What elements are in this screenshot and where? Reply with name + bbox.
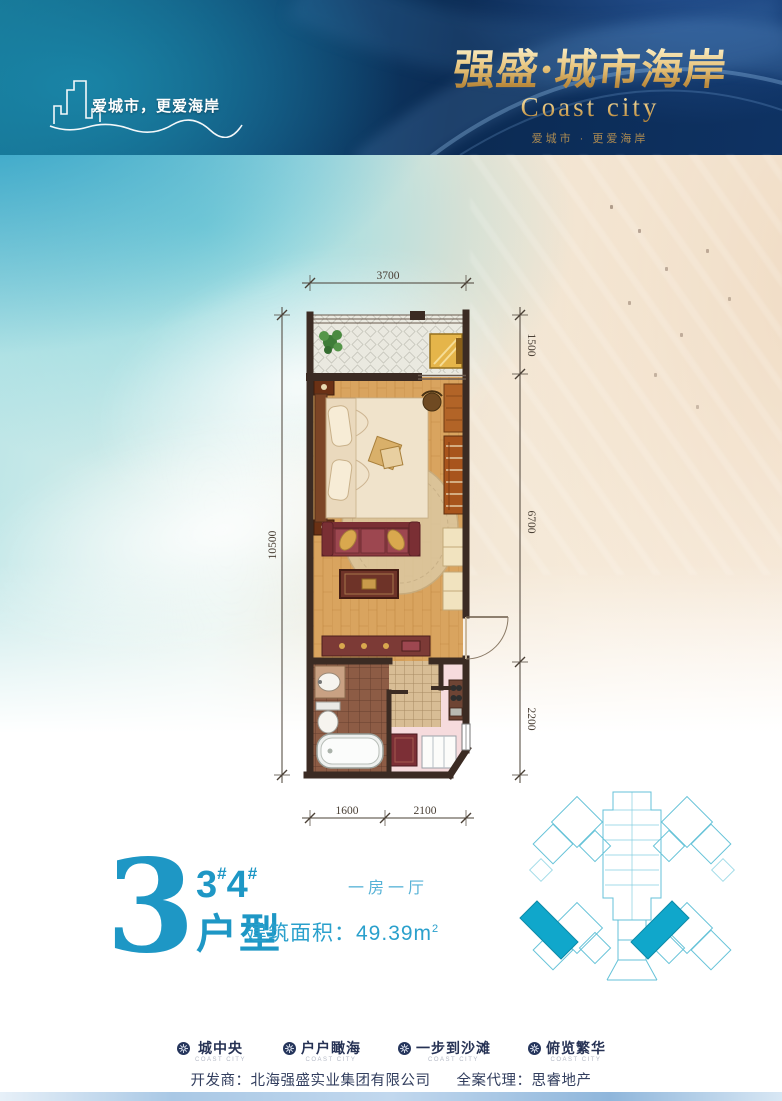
feature-caption: COAST CITY xyxy=(428,1057,479,1063)
feature-label: 户户瞰海 xyxy=(301,1041,361,1056)
area-value: 建筑面积：49.39m xyxy=(246,922,432,945)
balcony xyxy=(310,311,466,373)
wardrobe xyxy=(444,436,465,514)
feature-caption: COAST CITY xyxy=(195,1057,246,1063)
dim-top: 3700 xyxy=(377,270,400,282)
brand-name-cn: 强盛·城市海岸 xyxy=(428,48,753,92)
bathtub xyxy=(317,734,383,768)
seal-icon xyxy=(527,1041,542,1056)
feature-label: 俯览繁华 xyxy=(546,1041,606,1056)
brand-block: 强盛·城市海岸 Coast city 爱城市 · 更爱海岸 xyxy=(430,48,750,146)
floor-plan: 3700 10500 1500 6700 2200 1600 2100 xyxy=(260,260,560,840)
feature-list: 城中央COAST CITY 户户瞰海COAST CITY 一步到沙滩COAST … xyxy=(0,1041,782,1063)
built-area: 建筑面积：49.39m2 xyxy=(246,917,439,947)
highlighted-unit-right xyxy=(631,901,689,959)
railing-post xyxy=(410,311,425,320)
feature-caption: COAST CITY xyxy=(306,1057,357,1063)
building-a-mark: # xyxy=(217,864,226,883)
feature-label: 城中央 xyxy=(198,1041,243,1056)
poster-page: { "banner": { "tagline": "爱城市，更爱海岸", "br… xyxy=(0,0,782,1101)
footer-credits: 开发商：北海强盛实业集团有限公司全案代理：思睿地产 xyxy=(0,1069,782,1090)
dim-right-2: 6700 xyxy=(525,511,537,534)
balcony-table xyxy=(430,334,462,368)
unit-type-number: 3 xyxy=(106,856,195,958)
feature-label: 一步到沙滩 xyxy=(416,1041,491,1056)
building-b-mark: # xyxy=(248,864,257,883)
feature-item: 俯览繁华COAST CITY xyxy=(527,1041,606,1063)
developer-text: 开发商：北海强盛实业集团有限公司 xyxy=(191,1073,431,1089)
feature-item: 户户瞰海COAST CITY xyxy=(282,1041,361,1063)
toilet xyxy=(316,702,340,733)
dim-bottom-1: 1600 xyxy=(336,805,359,817)
sofa xyxy=(322,522,420,556)
chair xyxy=(423,393,441,411)
site-key-plan xyxy=(515,780,775,1010)
agent-text: 全案代理：思睿地产 xyxy=(457,1073,592,1089)
tv-cabinet xyxy=(322,636,430,656)
feature-item: 一步到沙滩COAST CITY xyxy=(397,1041,491,1063)
feature-caption: COAST CITY xyxy=(551,1057,602,1063)
sink xyxy=(315,666,345,698)
top-banner: 爱城市，更爱海岸 强盛·城市海岸 Coast city 爱城市 · 更爱海岸 xyxy=(0,0,782,155)
area-superscript: 2 xyxy=(432,923,439,935)
feature-item: 城中央COAST CITY xyxy=(176,1041,246,1063)
layout-type: 一房一厅 xyxy=(348,874,428,898)
beach-people-dots xyxy=(610,205,613,209)
dim-left: 10500 xyxy=(267,530,279,559)
brand-name-en: Coast city xyxy=(430,92,750,123)
site-wing-nw xyxy=(530,797,611,882)
seal-icon xyxy=(282,1041,297,1056)
bottom-accent-bar xyxy=(0,1092,782,1101)
entry-door xyxy=(466,617,508,659)
stove xyxy=(449,680,463,720)
site-wing-ne xyxy=(653,797,734,882)
dim-right-3: 2200 xyxy=(525,708,537,731)
brand-slogan: 爱城市 · 更爱海岸 xyxy=(430,130,750,146)
dim-right-1: 1500 xyxy=(525,334,537,357)
coffee-table xyxy=(340,570,398,598)
seal-icon xyxy=(176,1041,191,1056)
seal-icon xyxy=(397,1041,412,1056)
dim-bottom-2: 2100 xyxy=(414,805,437,817)
banner-tagline: 爱城市，更爱海岸 xyxy=(92,95,220,116)
bed xyxy=(314,380,428,535)
kitchen-cabinet xyxy=(391,734,456,768)
